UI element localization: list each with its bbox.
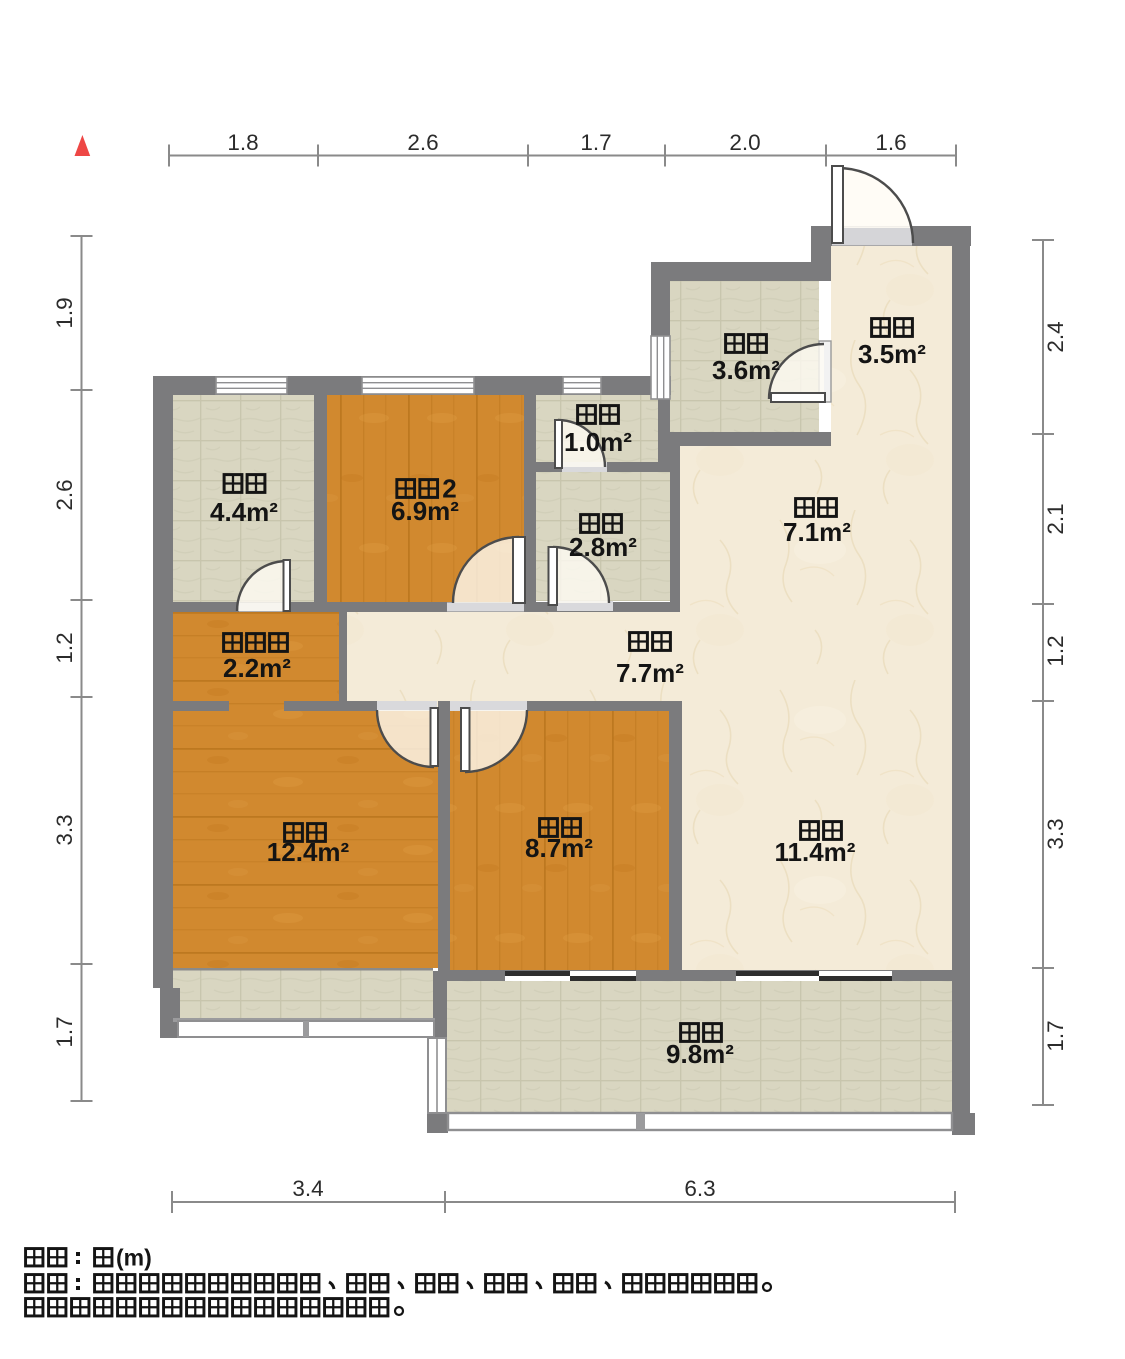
svg-text:2.2m²: 2.2m² bbox=[223, 653, 291, 683]
svg-text:2.6: 2.6 bbox=[52, 479, 77, 510]
svg-text:6.3: 6.3 bbox=[684, 1176, 715, 1201]
svg-text:1.0m²: 1.0m² bbox=[564, 427, 632, 457]
svg-text:1.8: 1.8 bbox=[227, 130, 258, 155]
svg-text:3.5m²: 3.5m² bbox=[858, 339, 926, 369]
svg-text:7.7m²: 7.7m² bbox=[616, 658, 684, 688]
svg-text:2.1: 2.1 bbox=[1043, 503, 1068, 534]
svg-text:8.7m²: 8.7m² bbox=[525, 833, 593, 863]
svg-text:1.9: 1.9 bbox=[52, 297, 77, 328]
svg-text:2.0: 2.0 bbox=[729, 130, 760, 155]
svg-text:1.7: 1.7 bbox=[1043, 1020, 1068, 1051]
svg-text:2.4: 2.4 bbox=[1043, 321, 1068, 352]
svg-text:7.1m²: 7.1m² bbox=[783, 517, 851, 547]
svg-text:1.7: 1.7 bbox=[52, 1016, 77, 1047]
svg-text:12.4m²: 12.4m² bbox=[267, 837, 350, 867]
svg-text:1.7: 1.7 bbox=[580, 130, 611, 155]
svg-text:1.2: 1.2 bbox=[1043, 635, 1068, 666]
svg-text:3.6m²: 3.6m² bbox=[712, 355, 780, 385]
svg-text:4.4m²: 4.4m² bbox=[210, 497, 278, 527]
svg-text:11.4m²: 11.4m² bbox=[775, 837, 856, 867]
svg-text:1.6: 1.6 bbox=[875, 130, 906, 155]
svg-text:9.8m²: 9.8m² bbox=[666, 1039, 734, 1069]
svg-text:3.3: 3.3 bbox=[52, 814, 77, 845]
svg-text:2.6: 2.6 bbox=[407, 130, 438, 155]
svg-text:1.2: 1.2 bbox=[52, 632, 77, 663]
svg-text:3.4: 3.4 bbox=[292, 1176, 323, 1201]
svg-text:(m): (m) bbox=[116, 1245, 152, 1271]
svg-text:6.9m²: 6.9m² bbox=[391, 496, 459, 526]
svg-text:3.3: 3.3 bbox=[1043, 818, 1068, 849]
svg-text:2.8m²: 2.8m² bbox=[569, 532, 637, 562]
